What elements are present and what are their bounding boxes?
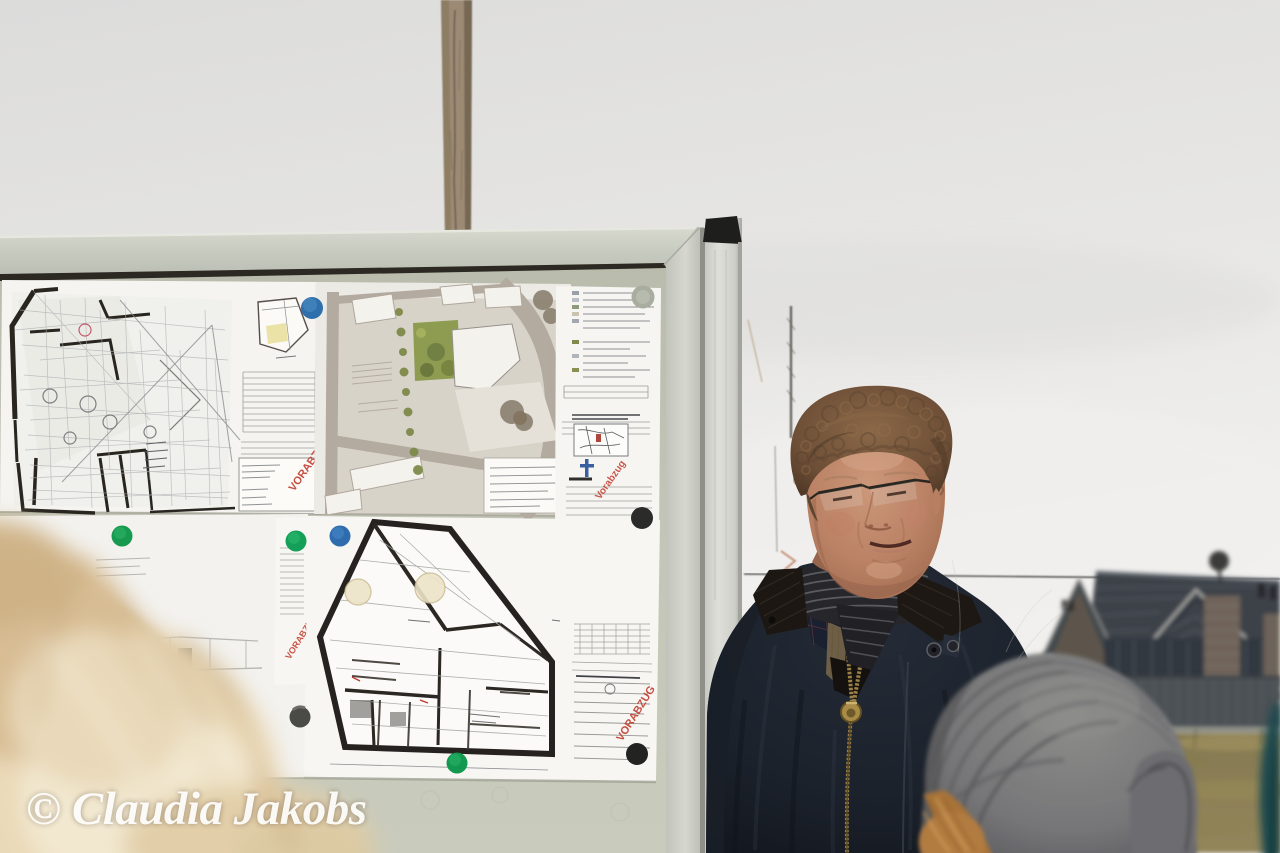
- svg-text:© Claudia Jakobs: © Claudia Jakobs: [26, 783, 367, 835]
